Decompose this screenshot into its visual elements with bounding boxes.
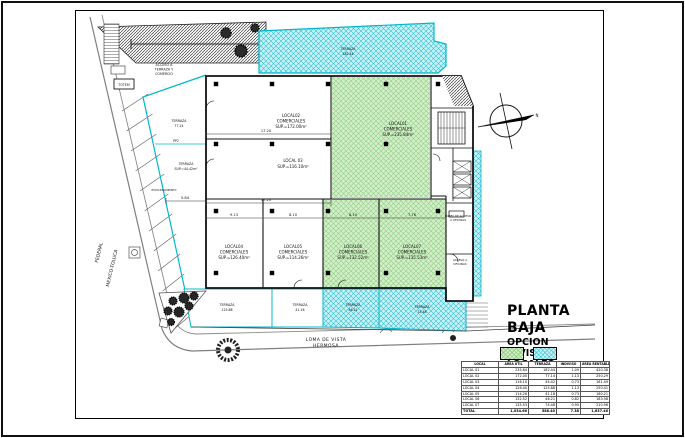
street-left-l2: MEXICO-TOLUCA: [105, 248, 120, 287]
table-cell: 588.40: [529, 409, 557, 415]
street-bottom-l2: HERMOSA: [313, 343, 339, 349]
table-cell: TOTAL: [462, 409, 499, 415]
local07-name: LOCAL07: [403, 244, 422, 249]
local04-name: LOCAL04: [225, 244, 244, 249]
local01-type: COMERCIALES: [384, 127, 413, 132]
table-cell: 1,637.46: [581, 409, 610, 415]
local06-name: LOCAL06: [344, 244, 363, 249]
office-access-l2: OFICINAS: [453, 262, 466, 266]
local05-name: LOCAL05: [284, 244, 303, 249]
dim-5-84: 5.84: [181, 196, 190, 200]
walk-strip: [104, 24, 119, 64]
table-cell: 7.38: [557, 409, 581, 415]
terrace-b3-label: TERRAZA: [345, 303, 362, 307]
utility-box: [129, 247, 140, 258]
terrace-b4-value: 74.48: [417, 310, 426, 314]
drawing-frame: N TERRAZA 182.44 ACCESO A TERRAZA Y COME…: [75, 10, 604, 419]
side-steps: [466, 303, 488, 327]
terrace-left-upper-value: 77.14: [174, 124, 183, 128]
small-box: [111, 66, 125, 74]
legend-green-swatch: [500, 347, 524, 360]
core-hatch-wedge: [442, 76, 473, 106]
terrace-top-value: 182.44: [342, 52, 353, 56]
local02-area: SUP.=172.00m²: [275, 124, 307, 129]
terrace-left-mid-label: TERRAZA: [178, 162, 195, 166]
local03-area: SUP.=116.10m²: [277, 164, 309, 169]
right-cyan-strip: [473, 151, 481, 296]
street-bottom-l1: LOMA DE VISTA: [306, 337, 346, 343]
local04-type: COMERCIALES: [220, 250, 249, 255]
dim-17-20-b: 17.20: [261, 198, 272, 202]
local07-type: COMERCIALES: [398, 250, 427, 255]
terrace-left-mid-value: SUP.=44.42m²: [175, 167, 199, 171]
table-total-row: TOTAL1,034.66588.407.381,637.46: [462, 409, 610, 415]
pp2-label: PP2: [173, 139, 179, 143]
terrace-b1-label: TERRAZA: [219, 303, 236, 307]
access-terrace-l2: TERRAZA Y: [154, 68, 174, 72]
local06-type: COMERCIALES: [339, 250, 368, 255]
terrace-b2-label: TERRAZA: [292, 303, 309, 307]
dim-8-10-b: 8.10: [349, 213, 358, 217]
dim-9-13: 9.13: [230, 213, 238, 217]
local05-area: SUP.=114.26m²: [277, 255, 309, 260]
access-terrace-l1: ACCESO A: [156, 63, 174, 67]
local01-name: LOCAL01: [389, 121, 408, 126]
lobby-label-l2: A OFICINAS: [450, 218, 466, 222]
area-table: LOCALÁREA ÚTILTERRAZAINDIVISOÁREA RENTAB…: [461, 361, 610, 415]
plan-title: PLANTA BAJA: [507, 303, 603, 337]
access-terrace-l3: COMERCIO: [155, 72, 173, 76]
local03-name: LOCAL 03: [283, 158, 303, 163]
local02-name: LOCAL02: [282, 113, 301, 118]
terrace-left-upper-label: TERRAZA: [171, 119, 188, 123]
plan-sheet: { "title_block": { "title": "PLANTA BAJA…: [0, 0, 685, 438]
dim-8-10-a: 8.10: [289, 213, 298, 217]
table-cell: 1,034.66: [499, 409, 529, 415]
terrace-b4-label: TERRAZA: [414, 305, 431, 309]
terrace-top-label: TERRAZA: [340, 47, 357, 51]
north-label: N: [536, 113, 539, 118]
local01-area: SUP.=235.84m²: [382, 132, 414, 137]
local07-area: SUP.=135.53m²: [396, 255, 428, 260]
table-header-row: LOCALÁREA ÚTILTERRAZAINDIVISOÁREA RENTAB…: [462, 362, 610, 368]
local06-area: SUP.=132.52m²: [337, 255, 369, 260]
dim-7-76: 7.76: [408, 213, 417, 217]
totem-label: TOTEM: [117, 83, 129, 87]
terrace-b3-value: 46.21: [348, 308, 357, 312]
elevators: [453, 161, 471, 198]
table-cell: ÁREA RENTABLE: [581, 362, 610, 368]
terrace-b2-value: 41.18: [295, 308, 304, 312]
north-arrow: N: [478, 93, 539, 149]
dim-17-20-a: 17.20: [261, 129, 272, 133]
local04-area: SUP.=126.40m²: [218, 255, 250, 260]
local01-area: [332, 77, 430, 198]
local02-type: COMERCIALES: [277, 119, 306, 124]
parking-label: ESTACIONAMIENTO: [152, 188, 177, 192]
street-pole: [450, 335, 456, 341]
terrace-b1-value: 125.88: [221, 308, 232, 312]
legend-cyan-swatch: [533, 347, 557, 360]
local05-type: COMERCIALES: [279, 250, 308, 255]
street-left-l1: FEDERAL: [94, 242, 105, 264]
